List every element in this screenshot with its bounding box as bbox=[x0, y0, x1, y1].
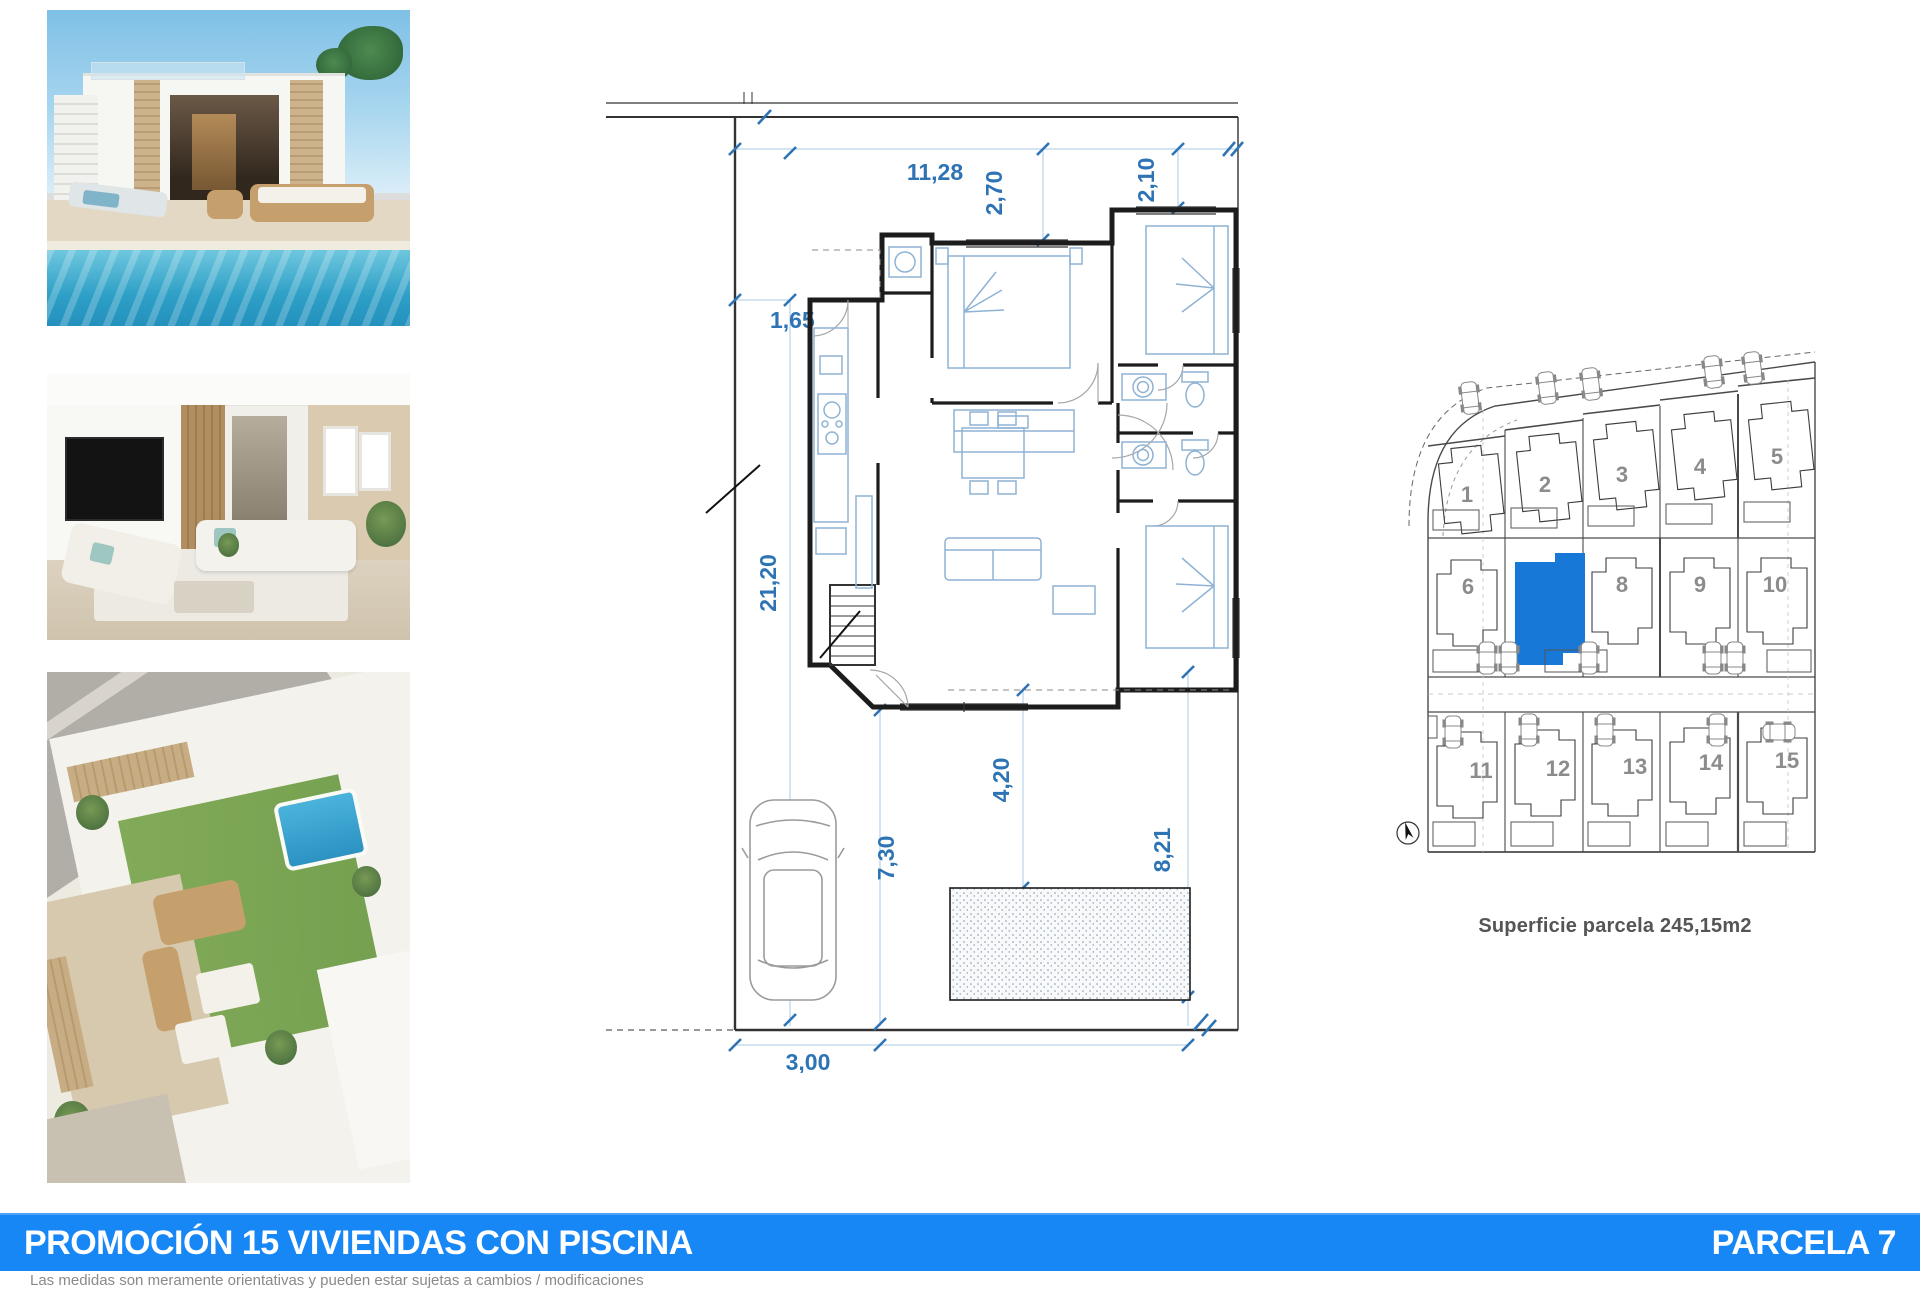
floor-plan: 11,28 2,70 2,10 1,65 21,20 7,30 4,20 8,2… bbox=[598, 58, 1246, 1073]
dim-driveway: 3,00 bbox=[786, 1049, 831, 1073]
svg-text:6: 6 bbox=[1462, 574, 1474, 599]
dim-depth-right-b: 2,10 bbox=[1133, 158, 1159, 203]
pool-ripples bbox=[47, 250, 410, 326]
footer-bar: PROMOCIÓN 15 VIVIENDAS CON PISCINA PARCE… bbox=[0, 1213, 1920, 1271]
plot-numbers: 1 2 3 4 5 6 8 9 10 11 12 13 14 15 bbox=[1461, 444, 1799, 783]
photo-villa-exterior bbox=[47, 10, 410, 326]
svg-text:1: 1 bbox=[1461, 482, 1473, 507]
sofa-cushions bbox=[258, 187, 367, 203]
pool-coping bbox=[47, 241, 410, 249]
pool bbox=[950, 888, 1190, 1000]
rattan-chair bbox=[207, 190, 243, 218]
parcel-area-label: Superficie parcela 245,15m2 bbox=[1395, 915, 1835, 938]
svg-text:14: 14 bbox=[1699, 750, 1724, 775]
wall-art-frame bbox=[323, 426, 358, 496]
dim-plot-depth: 21,20 bbox=[755, 554, 781, 612]
site-plan: 1 2 3 4 5 6 8 9 10 11 12 13 14 15 bbox=[1395, 350, 1835, 860]
furniture bbox=[814, 226, 1228, 648]
compass-icon bbox=[1397, 821, 1419, 844]
svg-text:9: 9 bbox=[1694, 572, 1706, 597]
svg-text:8: 8 bbox=[1616, 572, 1628, 597]
ceiling bbox=[47, 373, 410, 406]
car-icon bbox=[742, 800, 844, 1000]
interior-light bbox=[192, 114, 236, 190]
disclaimer-text: Las medidas son meramente orientativas y… bbox=[30, 1272, 644, 1289]
plant bbox=[352, 866, 381, 897]
svg-text:4: 4 bbox=[1694, 454, 1707, 479]
potted-plant bbox=[366, 501, 406, 546]
svg-text:11: 11 bbox=[1469, 758, 1492, 783]
photo-aerial-terrace bbox=[47, 672, 410, 1183]
wall-art-frame bbox=[359, 432, 390, 491]
promotion-title: PROMOCIÓN 15 VIVIENDAS CON PISCINA bbox=[24, 1224, 693, 1263]
dim-plot-width: 11,28 bbox=[907, 159, 963, 185]
coffee-table bbox=[174, 579, 254, 613]
house-partitions bbox=[878, 243, 1236, 690]
highlighted-plot-7 bbox=[1515, 553, 1585, 665]
dim-terrace: 4,20 bbox=[988, 758, 1014, 803]
dim-garden-left: 7,30 bbox=[873, 836, 899, 881]
dim-depth-right-a: 2,70 bbox=[981, 171, 1007, 216]
plant bbox=[76, 795, 109, 831]
svg-text:12: 12 bbox=[1546, 756, 1570, 781]
svg-text:13: 13 bbox=[1623, 754, 1647, 779]
tv-screen bbox=[65, 437, 163, 521]
dim-garden-right: 8,21 bbox=[1149, 827, 1175, 872]
parcel-label: PARCELA 7 bbox=[1712, 1224, 1896, 1263]
photo-living-room bbox=[47, 373, 410, 640]
svg-text:10: 10 bbox=[1763, 572, 1787, 597]
svg-text:3: 3 bbox=[1616, 462, 1628, 487]
svg-text:2: 2 bbox=[1539, 472, 1551, 497]
roof-glass-railing bbox=[91, 62, 245, 80]
svg-text:5: 5 bbox=[1771, 444, 1783, 469]
svg-text:15: 15 bbox=[1775, 748, 1799, 773]
stone-pillar bbox=[134, 80, 159, 203]
